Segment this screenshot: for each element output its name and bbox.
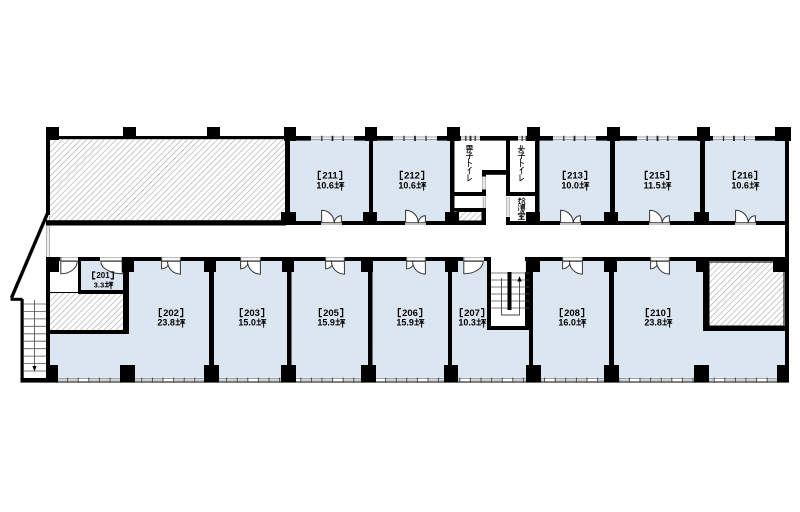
svg-text:10.6: 10.6	[731, 181, 749, 191]
svg-text:15.9: 15.9	[317, 318, 335, 328]
svg-text:10.3: 10.3	[458, 318, 476, 328]
svg-text:15.0: 15.0	[238, 318, 256, 328]
svg-text:10.6: 10.6	[316, 181, 334, 191]
svg-text:16.0: 16.0	[558, 318, 576, 328]
svg-text:3.3: 3.3	[94, 280, 105, 289]
svg-text:10.0: 10.0	[561, 181, 579, 191]
svg-text:23.8: 23.8	[157, 318, 175, 328]
svg-text:23.8: 23.8	[644, 318, 662, 328]
svg-text:11.5: 11.5	[644, 181, 661, 191]
svg-text:15.9: 15.9	[396, 318, 414, 328]
svg-text:10.6: 10.6	[398, 181, 416, 191]
svg-text:201: 201	[96, 271, 110, 280]
